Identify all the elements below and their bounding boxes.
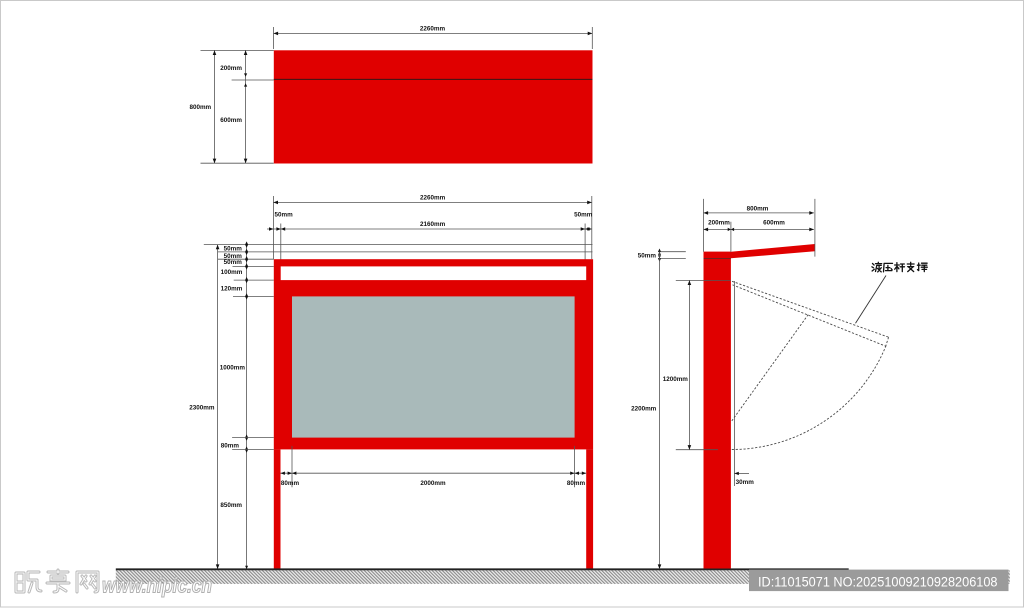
svg-text:50mm: 50mm bbox=[224, 246, 243, 253]
svg-text:30mm: 30mm bbox=[736, 479, 755, 486]
svg-text:50mm: 50mm bbox=[574, 211, 593, 218]
svg-text:80mm: 80mm bbox=[221, 443, 240, 450]
svg-text:200mm: 200mm bbox=[220, 65, 242, 72]
svg-text:2160mm: 2160mm bbox=[420, 221, 446, 228]
svg-text:50mm: 50mm bbox=[224, 259, 243, 266]
svg-text:2000mm: 2000mm bbox=[420, 480, 446, 487]
svg-text:2260mm: 2260mm bbox=[420, 26, 446, 33]
svg-text:120mm: 120mm bbox=[221, 285, 243, 292]
svg-text:850mm: 850mm bbox=[220, 502, 242, 509]
svg-text:www.nipic.cn: www.nipic.cn bbox=[102, 575, 212, 598]
svg-text:800mm: 800mm bbox=[747, 205, 769, 212]
svg-text:100mm: 100mm bbox=[221, 269, 243, 276]
svg-text:50mm: 50mm bbox=[274, 211, 293, 218]
svg-text:80mm: 80mm bbox=[567, 480, 586, 487]
svg-text:800mm: 800mm bbox=[189, 104, 211, 111]
svg-text:2200mm: 2200mm bbox=[631, 405, 657, 412]
svg-text:600mm: 600mm bbox=[220, 117, 242, 124]
svg-text:200mm: 200mm bbox=[708, 220, 730, 227]
svg-text:1200mm: 1200mm bbox=[663, 376, 689, 383]
svg-text:2300mm: 2300mm bbox=[189, 405, 215, 412]
svg-text:80mm: 80mm bbox=[281, 480, 300, 487]
svg-text:ID:11015071 NO:202510092109282: ID:11015071 NO:20251009210928206108 bbox=[758, 574, 998, 590]
svg-text:2260mm: 2260mm bbox=[420, 195, 446, 202]
svg-text:1000mm: 1000mm bbox=[220, 365, 246, 372]
svg-text:600mm: 600mm bbox=[763, 220, 785, 227]
svg-text:50mm: 50mm bbox=[638, 252, 657, 259]
